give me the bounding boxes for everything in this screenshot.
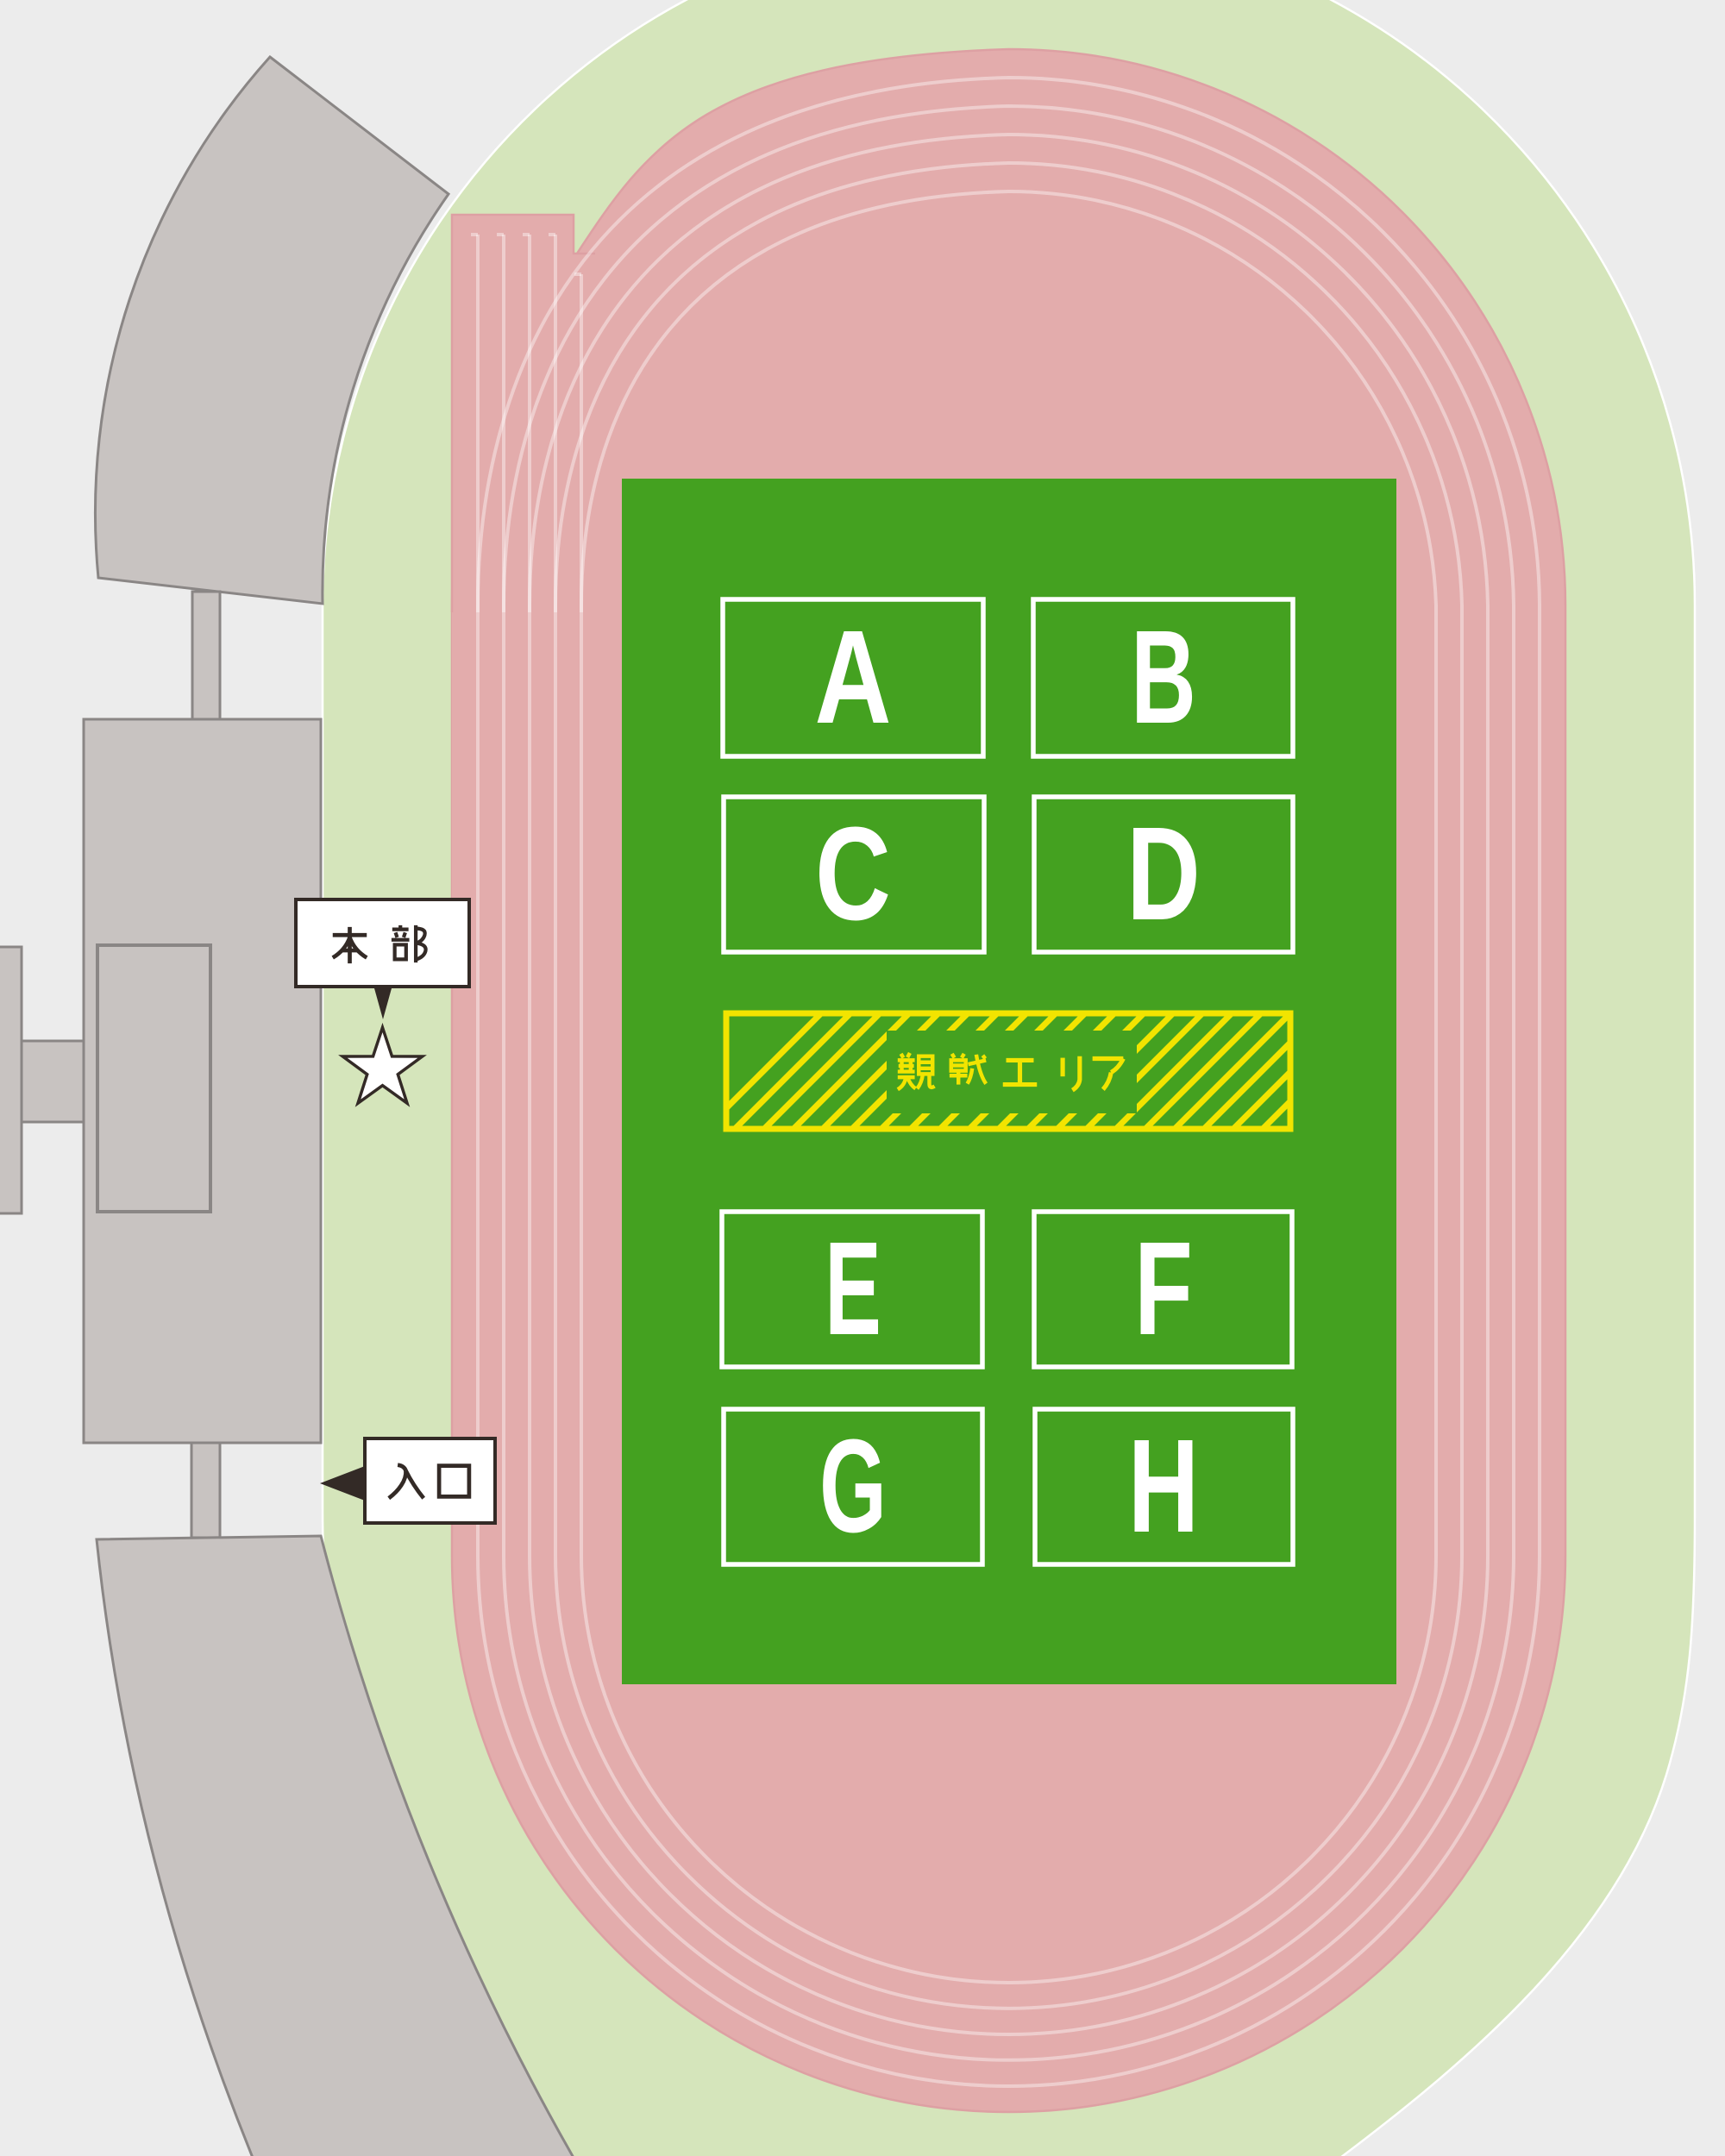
svg-text:B: B — [1131, 603, 1196, 751]
svg-text:E: E — [825, 1215, 881, 1363]
svg-text:A: A — [815, 603, 892, 751]
svg-text:F: F — [1134, 1215, 1193, 1363]
svg-text:H: H — [1128, 1411, 1199, 1560]
svg-text:D: D — [1126, 800, 1201, 948]
svg-text:G: G — [819, 1411, 887, 1560]
svg-text:C: C — [815, 799, 891, 948]
